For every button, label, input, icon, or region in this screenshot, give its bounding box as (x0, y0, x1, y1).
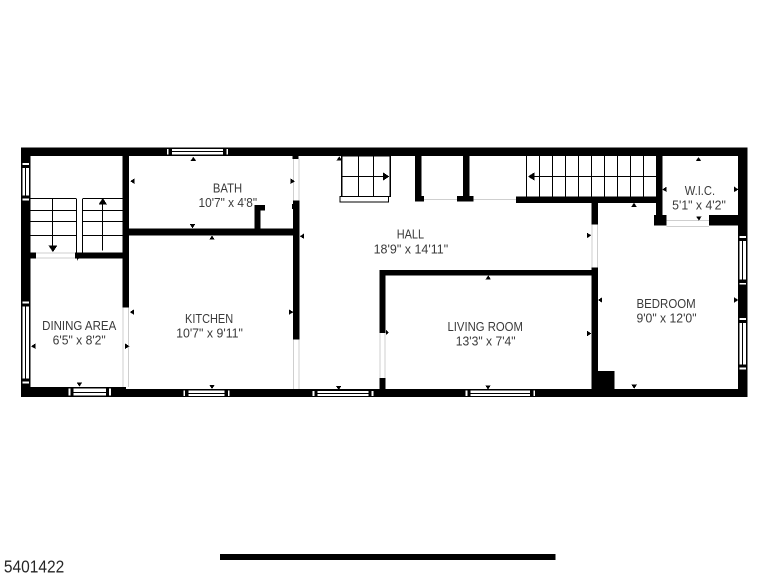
svg-text:LIVING ROOM: LIVING ROOM (448, 320, 523, 334)
svg-text:HALL: HALL (397, 227, 424, 241)
svg-text:6'5" x 8'2": 6'5" x 8'2" (53, 334, 106, 348)
svg-text:10'7" x 4'8": 10'7" x 4'8" (199, 196, 258, 210)
svg-text:BATH: BATH (213, 182, 242, 196)
svg-text:DINING AREA: DINING AREA (42, 319, 117, 333)
svg-text:9'0" x 12'0": 9'0" x 12'0" (636, 311, 696, 325)
svg-text:13'3" x 7'4": 13'3" x 7'4" (456, 334, 516, 348)
svg-text:W.I.C.: W.I.C. (685, 184, 715, 198)
svg-text:5401422: 5401422 (4, 557, 64, 576)
svg-text:5'1" x 4'2": 5'1" x 4'2" (672, 199, 726, 213)
svg-text:10'7" x 9'11": 10'7" x 9'11" (176, 326, 243, 340)
svg-text:18'9" x 14'11": 18'9" x 14'11" (374, 243, 449, 257)
svg-text:KITCHEN: KITCHEN (185, 312, 233, 326)
svg-text:BEDROOM: BEDROOM (637, 297, 696, 311)
